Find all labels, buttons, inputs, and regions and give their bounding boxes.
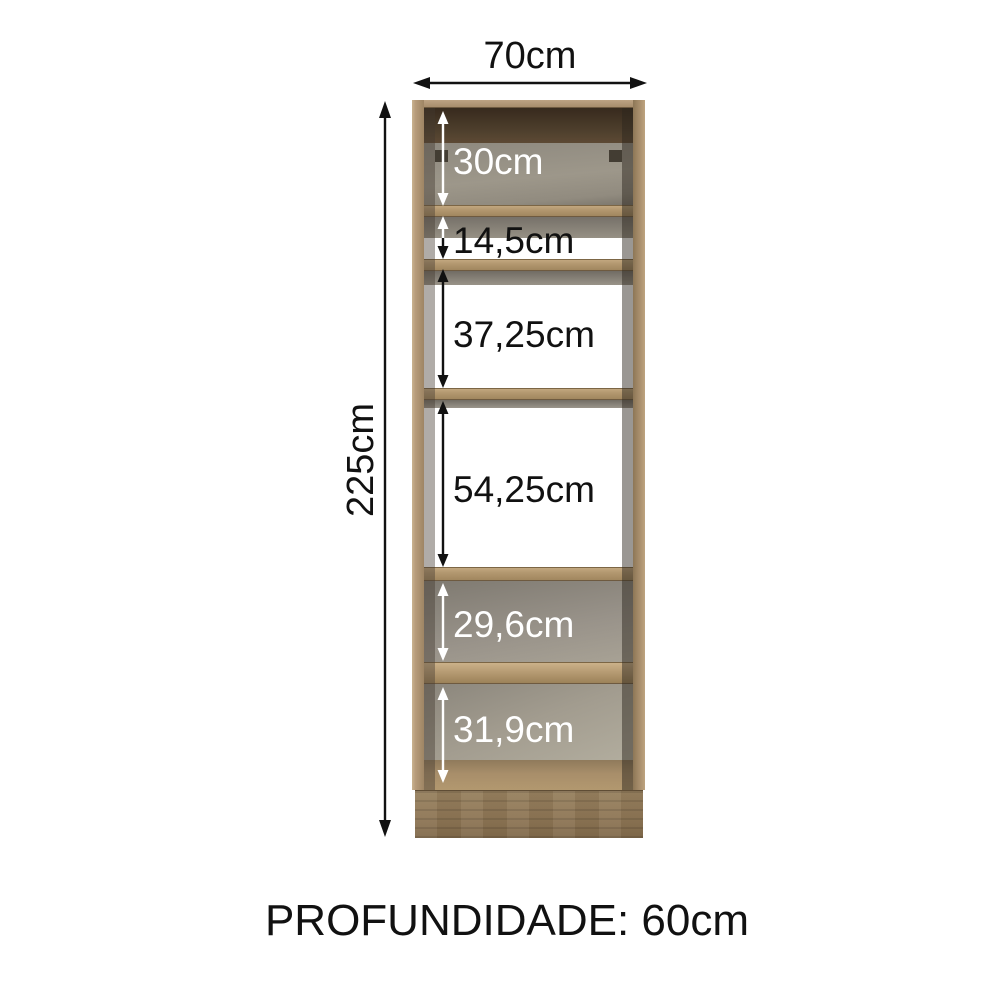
- compartment-3-shadow: [424, 271, 633, 285]
- depth-dimension-caption: PROFUNDIDADE: 60cm: [157, 897, 857, 945]
- compartment-3-arrow-icon: [435, 268, 451, 389]
- compartment-4-shadow: [424, 400, 633, 408]
- cabinet-interior: [424, 108, 633, 790]
- width-dimension-label: 70cm: [412, 37, 648, 75]
- shelf-4: [424, 567, 633, 581]
- furniture-dimension-diagram: 70cm 225cm: [0, 0, 1000, 1000]
- shelf-3: [424, 388, 633, 400]
- cabinet-floor: [424, 760, 633, 790]
- compartment-4-size-label: 54,25cm: [453, 471, 595, 508]
- height-dimension-arrow-icon: [377, 100, 393, 838]
- compartment-4-arrow-icon: [435, 400, 451, 568]
- shelf-5: [424, 662, 633, 684]
- compartment-2-size-label: 14,5cm: [453, 222, 574, 259]
- compartment-6-size-label: 31,9cm: [453, 711, 574, 748]
- width-dimension-arrow-icon: [412, 75, 648, 91]
- height-dimension-label: 225cm: [341, 385, 381, 535]
- shelf-1: [424, 205, 633, 217]
- compartment-5-arrow-icon: [435, 582, 451, 662]
- compartment-3-size-label: 37,25cm: [453, 316, 595, 353]
- cabinet-base-plinth: [415, 790, 643, 838]
- compartment-1-arrow-icon: [435, 110, 451, 207]
- compartment-5-size-label: 29,6cm: [453, 606, 574, 643]
- panel-bracket-right: [609, 150, 622, 162]
- cabinet-top-panel: [412, 100, 645, 108]
- cabinet-ceiling: [424, 108, 633, 143]
- compartment-6-arrow-icon: [435, 686, 451, 784]
- cabinet-side-panel-left: [412, 100, 424, 790]
- compartment-1-size-label: 30cm: [453, 143, 543, 180]
- compartment-2-arrow-icon: [435, 215, 451, 260]
- cabinet-side-panel-right: [633, 100, 645, 790]
